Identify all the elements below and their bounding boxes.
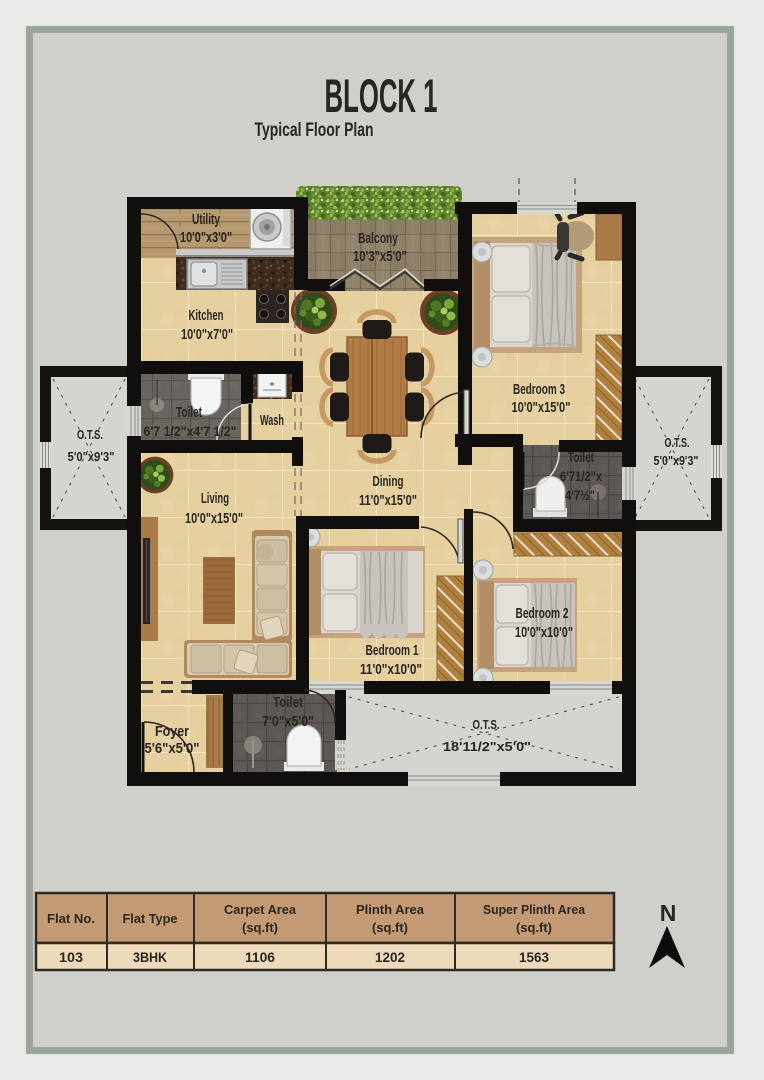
svg-text:10'0"x10'0": 10'0"x10'0": [515, 624, 573, 641]
svg-text:5'0"x9'3": 5'0"x9'3": [68, 449, 115, 464]
svg-text:103: 103: [59, 950, 84, 965]
svg-text:Plinth Area: Plinth Area: [356, 902, 425, 917]
svg-text:11'0"x10'0": 11'0"x10'0": [360, 661, 422, 678]
svg-text:Flat No.: Flat No.: [47, 911, 95, 926]
svg-text:10'3"x5'0": 10'3"x5'0": [353, 248, 407, 265]
svg-text:Bedroom 1: Bedroom 1: [366, 642, 419, 659]
svg-text:Carpet Area: Carpet Area: [224, 902, 297, 917]
svg-text:6'7 1/2"x4'7 1/2": 6'7 1/2"x4'7 1/2": [144, 423, 237, 439]
svg-text:3BHK: 3BHK: [133, 950, 167, 965]
svg-text:1202: 1202: [375, 950, 405, 965]
svg-text:Balcony: Balcony: [358, 230, 398, 247]
svg-text:5'6"x5'0": 5'6"x5'0": [145, 740, 200, 757]
svg-text:O.T.S.: O.T.S.: [77, 427, 103, 442]
svg-text:5'0"x9'3": 5'0"x9'3": [654, 453, 699, 468]
svg-text:1106: 1106: [245, 950, 275, 965]
svg-text:Bedroom 3: Bedroom 3: [513, 381, 565, 398]
svg-text:Toilet: Toilet: [176, 404, 202, 421]
svg-text:O.T.S.: O.T.S.: [473, 717, 500, 732]
svg-text:Utility: Utility: [192, 211, 220, 228]
svg-text:Super Plinth Area: Super Plinth Area: [483, 902, 586, 917]
svg-text:18'11/2"x5'0": 18'11/2"x5'0": [443, 739, 531, 754]
svg-text:Toilet: Toilet: [273, 694, 303, 711]
svg-text:Typical Floor Plan: Typical Floor Plan: [255, 120, 374, 141]
svg-text:Kitchen: Kitchen: [189, 307, 224, 324]
svg-text:11'0"x15'0": 11'0"x15'0": [359, 492, 417, 509]
svg-text:Toilet: Toilet: [568, 449, 594, 465]
svg-text:Wash: Wash: [260, 412, 284, 429]
svg-text:Bedroom 2: Bedroom 2: [516, 605, 569, 622]
svg-text:Dining: Dining: [373, 473, 404, 490]
svg-text:BLOCK 1: BLOCK 1: [325, 69, 438, 122]
svg-text:10'0"x15'0": 10'0"x15'0": [185, 510, 243, 527]
svg-text:1563: 1563: [519, 950, 549, 965]
svg-text:N: N: [660, 900, 677, 926]
svg-text:4'7½": 4'7½": [565, 487, 595, 503]
svg-text:Foyer: Foyer: [155, 723, 189, 740]
svg-text:(sq.ft): (sq.ft): [516, 921, 552, 935]
svg-text:(sq.ft): (sq.ft): [242, 921, 278, 935]
svg-text:Flat Type: Flat Type: [123, 911, 178, 926]
svg-text:10'0"x3'0": 10'0"x3'0": [180, 229, 232, 246]
svg-text:6'71/2"x: 6'71/2"x: [560, 468, 602, 484]
svg-text:O.T.S.: O.T.S.: [665, 435, 690, 450]
svg-text:(sq.ft): (sq.ft): [372, 921, 408, 935]
svg-text:10'0"x15'0": 10'0"x15'0": [512, 399, 571, 416]
svg-text:Living: Living: [201, 490, 229, 507]
svg-text:10'0"x7'0": 10'0"x7'0": [181, 326, 233, 343]
svg-text:7'0"x5'0": 7'0"x5'0": [262, 713, 314, 730]
